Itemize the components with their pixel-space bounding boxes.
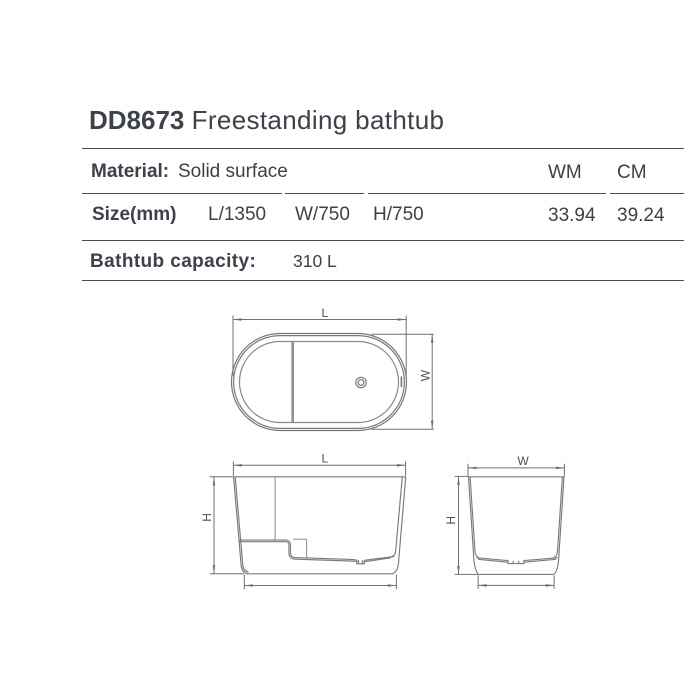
svg-text:H: H (200, 513, 214, 522)
svg-text:H: H (444, 516, 458, 525)
svg-text:L: L (321, 452, 328, 466)
svg-text:W: W (419, 369, 433, 381)
svg-text:L: L (321, 306, 328, 320)
svg-text:W: W (517, 454, 529, 468)
